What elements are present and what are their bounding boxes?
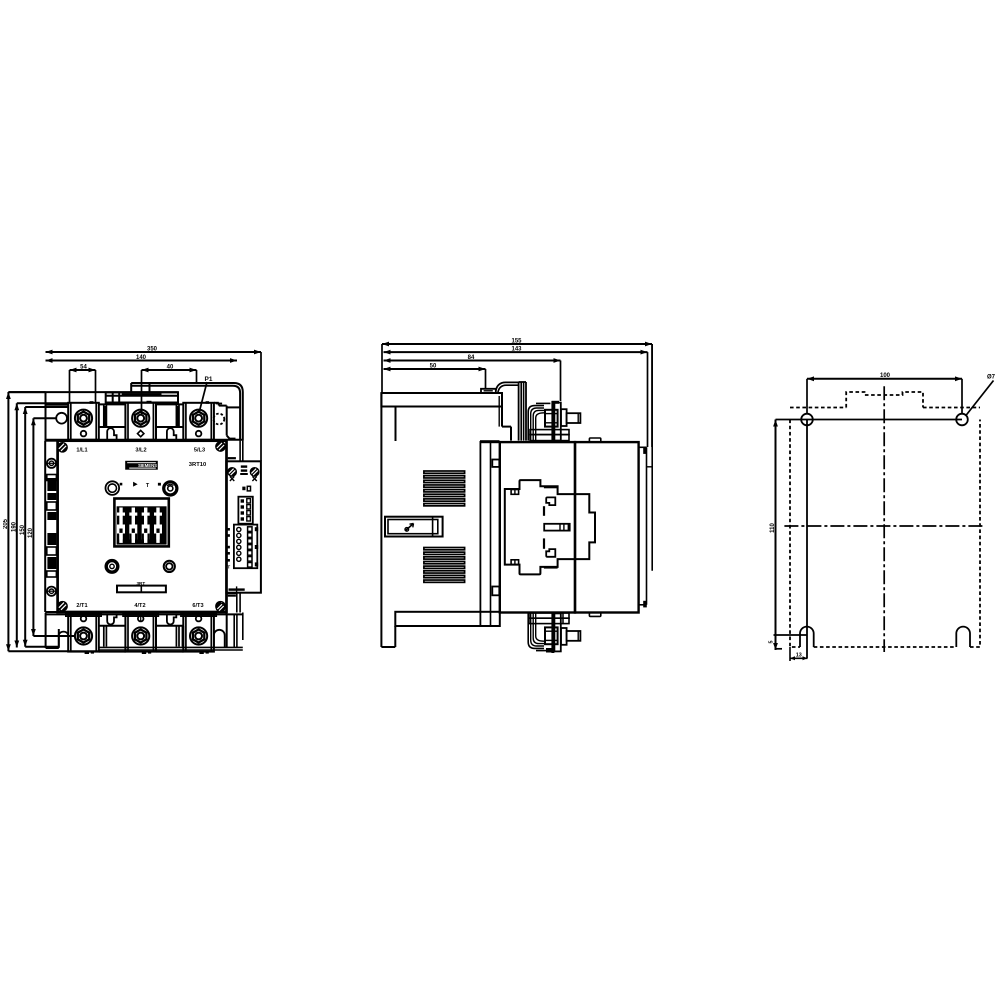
- svg-text:3/L2: 3/L2: [135, 448, 146, 454]
- svg-text:6/T3: 6/T3: [192, 603, 203, 609]
- svg-text:350: 350: [147, 347, 158, 353]
- svg-text:2/T1: 2/T1: [76, 603, 87, 609]
- svg-text:54: 54: [80, 365, 87, 371]
- svg-text:100: 100: [880, 373, 891, 379]
- svg-text:1/L1: 1/L1: [76, 448, 87, 454]
- svg-text:T: T: [227, 565, 230, 570]
- svg-text:155: 155: [511, 339, 522, 345]
- svg-text:4/T2: 4/T2: [134, 603, 145, 609]
- svg-text:3RT10: 3RT10: [189, 462, 206, 468]
- svg-text:84: 84: [468, 355, 475, 361]
- svg-text:SIEMENS: SIEMENS: [138, 463, 157, 468]
- svg-text:140: 140: [136, 355, 147, 361]
- svg-text:5/L3: 5/L3: [194, 448, 205, 454]
- svg-text:120: 120: [28, 527, 34, 538]
- svg-text:190: 190: [11, 521, 17, 532]
- svg-text:40: 40: [167, 365, 174, 371]
- svg-text:T: T: [146, 483, 150, 489]
- svg-text:143: 143: [511, 347, 522, 353]
- svg-text:205: 205: [3, 518, 9, 529]
- svg-text:P1: P1: [205, 376, 213, 383]
- svg-text:150: 150: [20, 524, 26, 535]
- svg-text:5: 5: [769, 641, 775, 644]
- svg-text:110: 110: [770, 523, 776, 533]
- svg-text:50: 50: [430, 364, 437, 370]
- svg-text:Ø7: Ø7: [987, 375, 996, 381]
- svg-text:13: 13: [796, 653, 802, 659]
